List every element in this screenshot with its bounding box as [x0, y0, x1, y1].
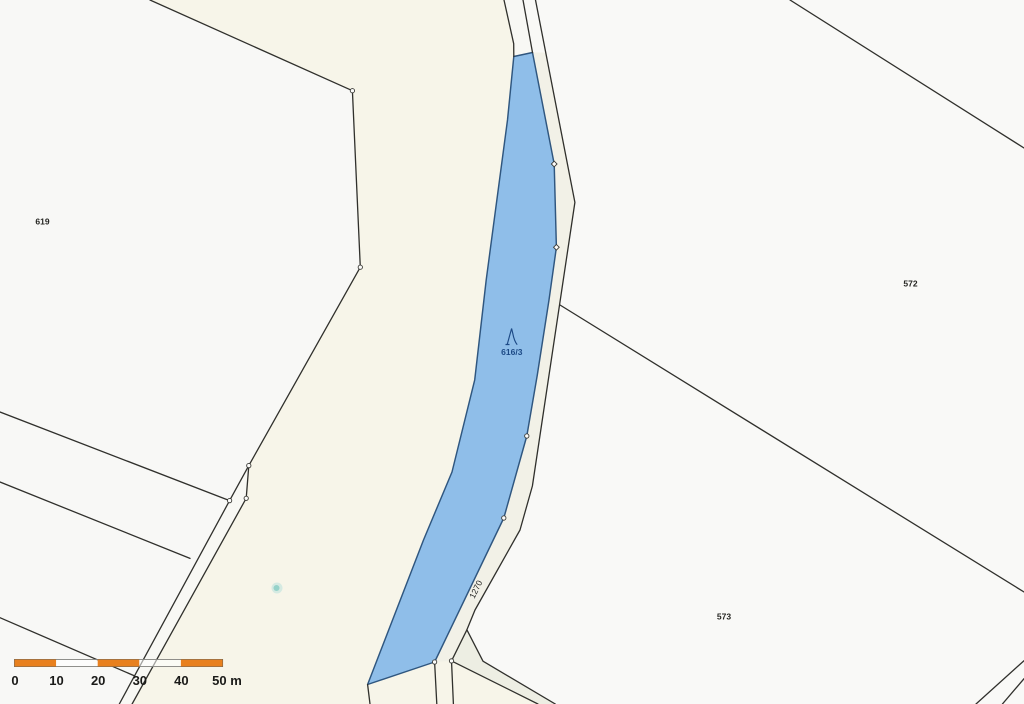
svg-text:616/3: 616/3 — [501, 347, 523, 357]
svg-text:30: 30 — [133, 673, 147, 688]
svg-text:10: 10 — [49, 673, 63, 688]
svg-text:40: 40 — [174, 673, 188, 688]
svg-text:573: 573 — [717, 612, 731, 622]
svg-text:572: 572 — [903, 279, 917, 289]
svg-text:20: 20 — [91, 673, 105, 688]
svg-text:619: 619 — [35, 217, 49, 227]
svg-text:0: 0 — [11, 673, 18, 688]
svg-text:50 m: 50 m — [212, 673, 242, 688]
